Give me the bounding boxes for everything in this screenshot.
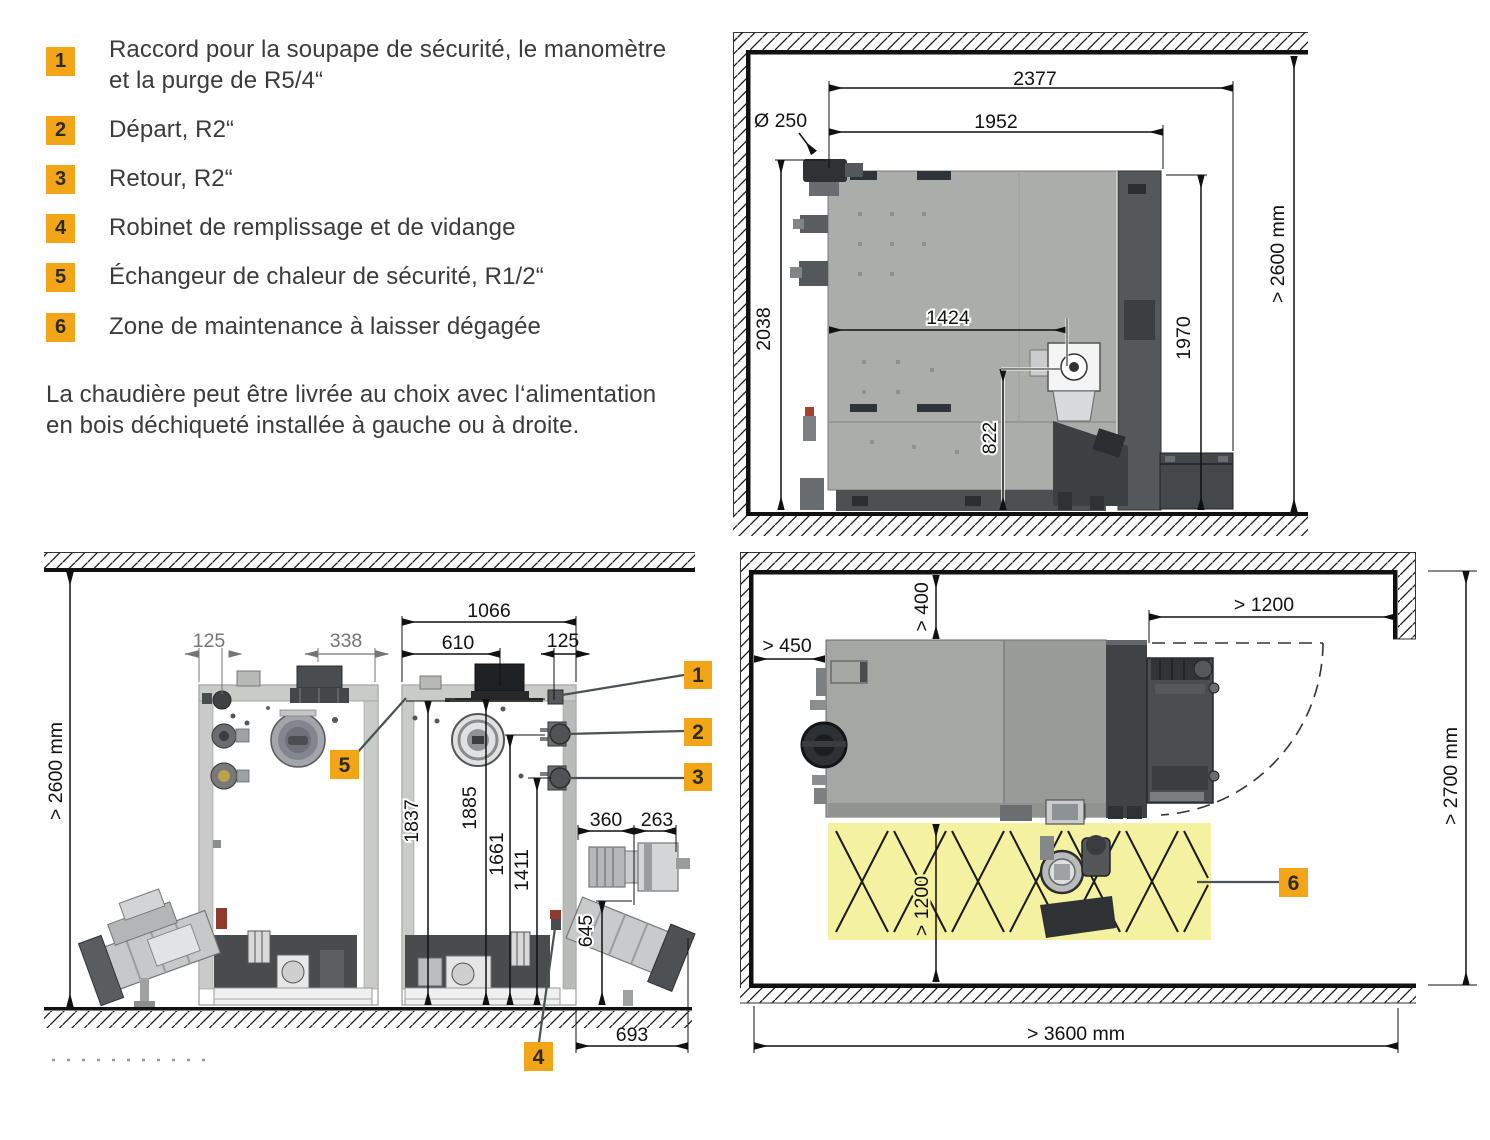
svg-text:1952: 1952	[974, 111, 1017, 133]
svg-text:> 1200: > 1200	[1234, 594, 1294, 616]
svg-text:1066: 1066	[467, 600, 510, 622]
svg-text:> 2600 mm: > 2600 mm	[1267, 205, 1289, 303]
svg-text:> 400: > 400	[911, 582, 933, 631]
svg-text:645: 645	[575, 915, 597, 948]
svg-text:1970: 1970	[1173, 316, 1195, 360]
svg-text:1411: 1411	[511, 849, 533, 891]
svg-text:338: 338	[330, 630, 363, 652]
svg-text:> 2700 mm: > 2700 mm	[1440, 727, 1462, 825]
svg-text:4: 4	[533, 1046, 545, 1069]
svg-text:1885: 1885	[459, 786, 481, 830]
svg-text:125: 125	[193, 630, 226, 652]
svg-text:> 3600 mm: > 3600 mm	[1027, 1023, 1125, 1045]
svg-text:2377: 2377	[1013, 68, 1056, 90]
svg-text:2038: 2038	[753, 307, 775, 350]
svg-text:5: 5	[339, 754, 351, 777]
svg-text:> 450: > 450	[762, 635, 811, 657]
svg-text:Ø 250: Ø 250	[754, 110, 807, 132]
svg-text:> 2600 mm: > 2600 mm	[45, 722, 67, 820]
svg-text:6: 6	[1288, 872, 1300, 895]
svg-text:610: 610	[442, 632, 475, 654]
svg-text:2: 2	[692, 721, 704, 744]
svg-text:1424: 1424	[926, 307, 970, 329]
svg-text:125: 125	[547, 630, 580, 652]
svg-text:263: 263	[641, 809, 674, 831]
svg-text:1661: 1661	[486, 832, 508, 875]
svg-text:1837: 1837	[401, 799, 423, 842]
svg-text:693: 693	[616, 1024, 649, 1046]
svg-text:> 1200: > 1200	[911, 876, 933, 936]
svg-text:360: 360	[590, 809, 623, 831]
svg-text:822: 822	[979, 422, 1001, 455]
svg-text:3: 3	[692, 766, 704, 789]
svg-text:1: 1	[692, 664, 704, 687]
